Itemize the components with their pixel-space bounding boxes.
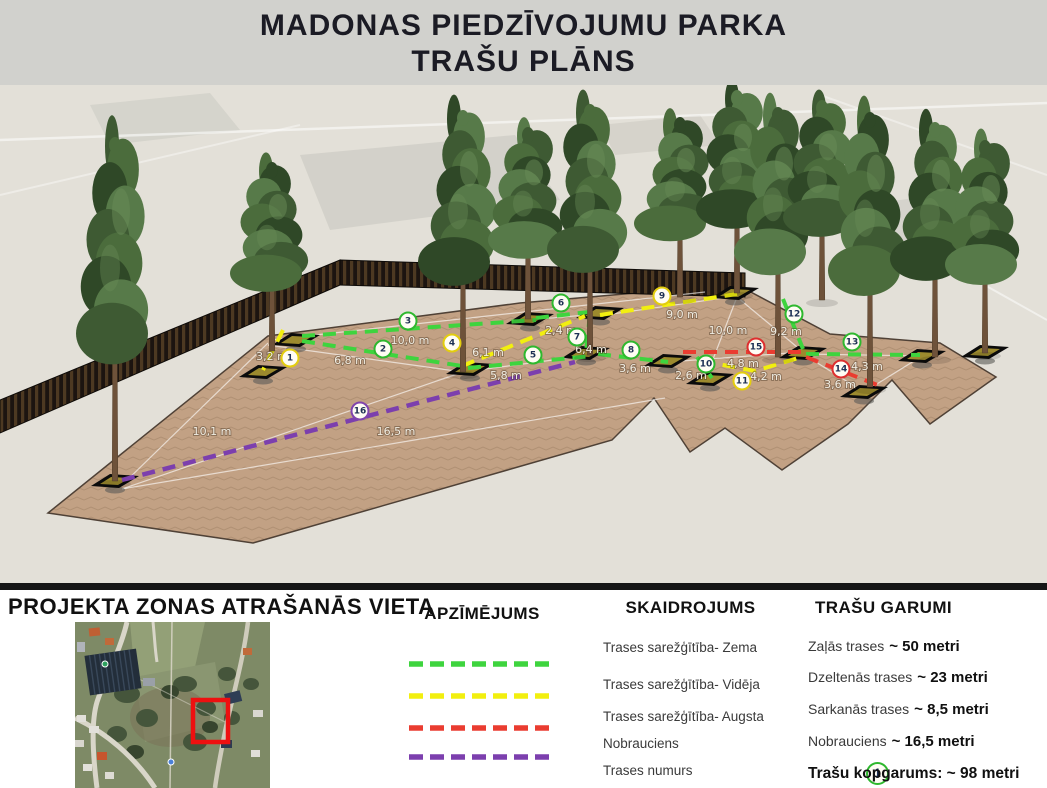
aerial-map-image — [75, 622, 270, 788]
legend-dash-swatch — [407, 719, 557, 727]
legend-dash-swatch — [407, 687, 557, 695]
measurement-label: 16,5 m — [377, 425, 416, 438]
svg-text:8: 8 — [628, 346, 634, 356]
measurement-label: 4,2 m — [750, 370, 782, 383]
track-number-marker: 11 — [734, 373, 751, 390]
track-number-marker: 4 — [444, 335, 461, 352]
svg-text:5: 5 — [530, 351, 536, 361]
legend-block: APZĪMĒJUMS 1 — [402, 590, 562, 788]
lengths-total: Trašu kopgarums: ~ 98 metri — [808, 765, 1019, 783]
length-value: ~ 23 metri — [917, 669, 987, 686]
measurement-label: 10,0 m — [391, 334, 430, 347]
svg-text:4: 4 — [449, 339, 455, 349]
svg-text:13: 13 — [846, 338, 859, 348]
svg-text:1: 1 — [287, 354, 293, 364]
length-row: Zaļās trases~ 50 metri — [808, 638, 960, 655]
pine-tree — [76, 115, 148, 488]
length-label: Dzeltenās trases — [808, 669, 912, 685]
measurement-label: 10,1 m — [193, 425, 232, 438]
track-number-marker: 9 — [654, 288, 671, 305]
location-heading: PROJEKTA ZONAS ATRAŠANĀS VIETA — [8, 594, 435, 620]
measurement-label: 3,6 m — [619, 362, 651, 375]
legend-footer: PROJEKTA ZONAS ATRAŠANĀS VIETA — [0, 590, 1047, 788]
map-pin-icon — [168, 759, 174, 765]
track-number-marker: 6 — [553, 295, 570, 312]
explanation-heading: SKAIDROJUMS — [603, 598, 778, 618]
measurement-label: 9,0 m — [666, 308, 698, 321]
length-row: Sarkanās trases~ 8,5 metri — [808, 701, 989, 718]
svg-text:10: 10 — [700, 360, 713, 370]
svg-text:12: 12 — [788, 310, 801, 320]
legend-dash-swatch — [407, 748, 557, 756]
explanation-item: Trases sarežģītība- Augsta — [603, 709, 764, 724]
svg-text:3: 3 — [405, 317, 411, 327]
track-number-marker: 15 — [748, 339, 765, 356]
length-label: Zaļās trases — [808, 638, 884, 654]
lengths-heading: TRAŠU GARUMI — [815, 598, 952, 618]
track-number-marker: 7 — [569, 329, 586, 346]
park-3d-render: 3,2 m10,0 m6,8 m6,1 m5,8 m2,4 m6,4 m3,6 … — [0, 85, 1047, 583]
length-row: Nobrauciens~ 16,5 metri — [808, 733, 975, 750]
length-value: ~ 8,5 metri — [914, 701, 989, 718]
measurement-label: 5,8 m — [490, 369, 522, 382]
legend-dash-swatch — [407, 655, 557, 663]
explanation-item: Trases numurs — [603, 763, 693, 778]
section-divider — [0, 583, 1047, 590]
length-row: Dzeltenās trases~ 23 metri — [808, 669, 988, 686]
park-plan-poster: MADONAS PIEDZĪVOJUMU PARKA TRAŠU PLĀNS — [0, 0, 1047, 788]
track-number-marker: 2 — [375, 341, 392, 358]
svg-text:9: 9 — [659, 292, 665, 302]
track-number-marker: 12 — [786, 306, 803, 323]
track-number-marker: 3 — [400, 313, 417, 330]
length-value: ~ 16,5 metri — [892, 733, 975, 750]
svg-text:2: 2 — [380, 345, 386, 355]
length-label: Sarkanās trases — [808, 701, 909, 717]
measurement-label: 3,6 m — [824, 378, 856, 391]
track-number-marker: 14 — [833, 361, 850, 378]
track-number-marker: 5 — [525, 347, 542, 364]
map-poi-icon — [102, 661, 108, 667]
legend-heading: APZĪMĒJUMS — [402, 604, 562, 624]
park-render-canvas: 3,2 m10,0 m6,8 m6,1 m5,8 m2,4 m6,4 m3,6 … — [0, 85, 1047, 583]
svg-text:7: 7 — [574, 333, 580, 343]
track-number-marker: 8 — [623, 342, 640, 359]
aerial-map — [75, 622, 270, 788]
svg-text:6: 6 — [558, 299, 564, 309]
length-value: ~ 50 metri — [889, 638, 959, 655]
track-number-marker: 10 — [698, 356, 715, 373]
measurement-label: 6,1 m — [472, 346, 504, 359]
explanation-item: Trases sarežģītība- Vidēja — [603, 677, 760, 692]
title-band: MADONAS PIEDZĪVOJUMU PARKA TRAŠU PLĀNS — [0, 0, 1047, 86]
svg-text:11: 11 — [736, 377, 749, 387]
track-number-marker: 1 — [282, 350, 299, 367]
explanation-item: Trases sarežģītība- Zema — [603, 640, 757, 655]
svg-text:15: 15 — [750, 343, 763, 353]
track-number-marker: 13 — [844, 334, 861, 351]
length-label: Nobrauciens — [808, 733, 887, 749]
measurement-label: 4,3 m — [851, 360, 883, 373]
svg-text:14: 14 — [835, 365, 848, 375]
track-number-marker: 16 — [352, 403, 369, 420]
measurement-label: 9,2 m — [770, 325, 802, 338]
measurement-label: 4,8 m — [727, 357, 759, 370]
explanation-item: Nobrauciens — [603, 736, 679, 751]
page-title-line1: MADONAS PIEDZĪVOJUMU PARKA — [0, 8, 1047, 44]
measurement-label: 10,0 m — [709, 324, 748, 337]
measurement-label: 6,8 m — [334, 354, 366, 367]
page-title-line2: TRAŠU PLĀNS — [0, 44, 1047, 80]
svg-text:16: 16 — [354, 407, 367, 417]
